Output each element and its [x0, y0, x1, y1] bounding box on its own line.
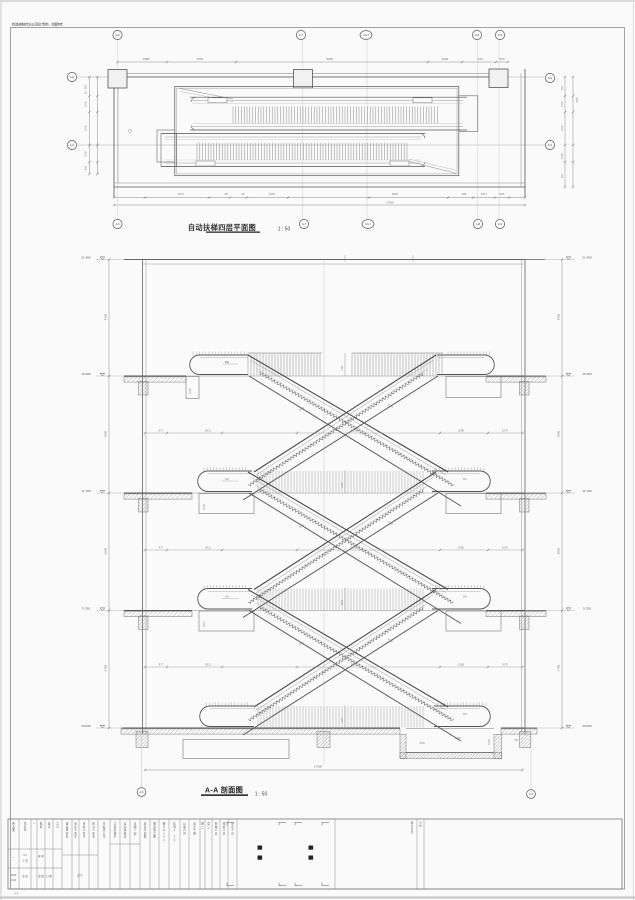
- svg-text:2611: 2611: [205, 546, 211, 550]
- svg-text:977: 977: [159, 546, 164, 550]
- svg-text:计: 计: [48, 825, 51, 829]
- svg-text:11.700: 11.700: [81, 489, 91, 493]
- svg-text:2988: 2988: [143, 57, 150, 61]
- svg-text:A-7: A-7: [302, 222, 307, 226]
- svg-text:8-6: 8-6: [225, 595, 229, 599]
- svg-text:A-6: A-6: [115, 222, 120, 226]
- svg-text:2400: 2400: [442, 57, 449, 61]
- svg-text:工 设: 工 设: [22, 858, 28, 862]
- svg-text:6000: 6000: [104, 547, 108, 554]
- svg-text:6800: 6800: [351, 663, 358, 667]
- svg-text:1500: 1500: [487, 739, 491, 745]
- svg-text:月: 月: [183, 831, 186, 835]
- svg-text:1000: 1000: [188, 388, 192, 394]
- svg-text:1/A-7: 1/A-7: [365, 223, 371, 226]
- svg-text:A-7: A-7: [299, 33, 304, 37]
- svg-text:字: 字: [74, 835, 77, 839]
- svg-text:三: 三: [207, 826, 210, 829]
- svg-text:39: 39: [224, 192, 228, 196]
- svg-text:2611: 2611: [205, 429, 211, 433]
- svg-text:2280: 2280: [458, 663, 465, 667]
- svg-text:1500: 1500: [560, 101, 564, 107]
- svg-text:16.500: 16.500: [81, 372, 91, 376]
- svg-text:1500: 1500: [84, 151, 88, 157]
- svg-text:750: 750: [514, 738, 519, 742]
- svg-text:500: 500: [499, 57, 504, 61]
- svg-text:密 级: 密 级: [38, 874, 44, 878]
- svg-text:图: 图: [153, 835, 156, 839]
- svg-text:8-6: 8-6: [225, 360, 229, 364]
- svg-text:200: 200: [462, 192, 467, 196]
- svg-text:A-9: A-9: [498, 33, 503, 37]
- svg-text:8-6: 8-6: [463, 712, 467, 716]
- svg-text:8-6: 8-6: [225, 477, 229, 481]
- svg-text:员: 员: [215, 831, 218, 835]
- svg-text:6.30: 6.30: [11, 879, 16, 882]
- svg-text:4800: 4800: [104, 430, 108, 437]
- svg-text:A-H: A-H: [70, 75, 75, 79]
- svg-text:准: 准: [40, 825, 43, 829]
- svg-text:977: 977: [159, 663, 164, 667]
- svg-text:1100: 1100: [341, 365, 344, 371]
- svg-text:A-H: A-H: [548, 76, 553, 80]
- svg-text:5.700: 5.700: [82, 606, 90, 610]
- svg-text:栏: 栏: [114, 835, 117, 839]
- svg-text:自动扶梯由专业公司设计制作，本图参考: 自动扶梯由专业公司设计制作，本图参考: [12, 22, 63, 27]
- svg-text:977: 977: [159, 429, 164, 433]
- svg-text:一: 一: [33, 823, 36, 826]
- svg-text:1871: 1871: [178, 192, 185, 196]
- svg-text:字: 字: [83, 835, 86, 839]
- svg-text:6800: 6800: [351, 429, 358, 433]
- svg-text:A-6: A-6: [140, 791, 145, 794]
- svg-text:1000: 1000: [202, 621, 206, 627]
- svg-text:日 期: 日 期: [46, 874, 52, 878]
- svg-text:1/A-7: 1/A-7: [363, 34, 369, 37]
- svg-text:450: 450: [560, 173, 564, 178]
- svg-text:340: 340: [477, 57, 482, 61]
- svg-text:中: 中: [24, 828, 27, 832]
- svg-text:8050: 8050: [327, 57, 334, 61]
- svg-text:450: 450: [84, 165, 88, 170]
- svg-text:17800: 17800: [314, 765, 323, 769]
- svg-text:2611: 2611: [205, 663, 211, 667]
- svg-text:员: 员: [231, 831, 234, 835]
- svg-text:员: 员: [223, 831, 226, 835]
- svg-text:21.400: 21.400: [81, 255, 91, 259]
- svg-text:1017: 1017: [481, 192, 488, 196]
- svg-text:A-9: A-9: [529, 793, 534, 796]
- svg-text:450: 450: [560, 85, 564, 90]
- svg-text:2280: 2280: [458, 429, 465, 433]
- svg-text:1100: 1100: [341, 482, 344, 488]
- svg-text:A-8: A-8: [476, 222, 481, 226]
- svg-text:详: 详: [124, 835, 127, 839]
- svg-text:1000: 1000: [202, 504, 206, 510]
- svg-text:8-6: 8-6: [463, 477, 467, 481]
- svg-text:4800: 4800: [557, 430, 561, 437]
- svg-text:司: 司: [103, 835, 106, 839]
- svg-text:图: 图: [12, 828, 15, 832]
- svg-text:1 : 50: 1 : 50: [255, 792, 268, 798]
- svg-text:号: 号: [56, 825, 59, 829]
- svg-text:）: ）: [134, 835, 137, 839]
- svg-text:设 计: 设 计: [77, 873, 83, 877]
- svg-text:11.700: 11.700: [582, 489, 592, 493]
- svg-text:号: 号: [411, 830, 414, 834]
- svg-text:5700: 5700: [104, 664, 108, 671]
- svg-text:1500: 1500: [560, 153, 564, 159]
- svg-text:16.500: 16.500: [582, 372, 592, 376]
- svg-text:±0.000: ±0.000: [81, 724, 91, 728]
- svg-text:1670: 1670: [502, 429, 509, 433]
- svg-text:±0.000: ±0.000: [582, 724, 592, 728]
- svg-text:自动扶梯四层平面图: 自动扶梯四层平面图: [188, 223, 256, 232]
- svg-text:4900: 4900: [104, 313, 108, 320]
- svg-text:1500: 1500: [84, 101, 88, 107]
- svg-text:二: 二: [201, 826, 204, 829]
- svg-text:6800: 6800: [351, 546, 358, 550]
- svg-text:1100: 1100: [341, 599, 344, 605]
- svg-text:2013: 2013: [11, 874, 17, 877]
- svg-text:90: 90: [241, 192, 245, 196]
- svg-text:A-9: A-9: [498, 222, 503, 226]
- svg-text:1 : 50: 1 : 50: [278, 227, 291, 233]
- svg-text:1670: 1670: [502, 546, 509, 550]
- svg-text:名: 名: [66, 835, 69, 839]
- svg-text:900: 900: [500, 192, 505, 196]
- svg-text:A-G: A-G: [548, 143, 553, 147]
- svg-text:3975: 3975: [392, 192, 399, 196]
- svg-text:修 改: 修 改: [22, 874, 28, 878]
- svg-text:4900: 4900: [557, 313, 561, 320]
- svg-text:2280: 2280: [458, 546, 465, 550]
- svg-text:2300: 2300: [419, 741, 425, 745]
- svg-text:390: 390: [84, 84, 88, 89]
- svg-text:批 阶: 批 阶: [38, 854, 44, 858]
- svg-text:5.700: 5.700: [583, 606, 591, 610]
- svg-text:A-A 剖面图: A-A 剖面图: [205, 786, 243, 795]
- svg-text:17800: 17800: [386, 200, 394, 204]
- svg-text:21.400: 21.400: [582, 255, 592, 259]
- svg-text:1307: 1307: [269, 192, 276, 196]
- svg-text:1500: 1500: [84, 125, 88, 131]
- svg-text:1100: 1100: [341, 717, 344, 723]
- svg-text:面: 面: [144, 835, 147, 839]
- svg-text:A-G: A-G: [70, 143, 75, 147]
- svg-text:5700: 5700: [557, 664, 561, 671]
- svg-text:册: 册: [193, 832, 196, 835]
- svg-text:1670: 1670: [502, 663, 509, 667]
- svg-text:4 4: 4 4: [14, 892, 19, 896]
- svg-text:A-6: A-6: [115, 33, 120, 37]
- svg-text:名: 名: [92, 835, 95, 839]
- svg-text:6000: 6000: [557, 547, 561, 554]
- svg-text:1500: 1500: [560, 125, 564, 131]
- svg-text:3050: 3050: [197, 57, 204, 61]
- svg-text:A-8: A-8: [475, 33, 480, 37]
- svg-text:3400: 3400: [575, 97, 579, 103]
- svg-text:8-6: 8-6: [463, 595, 467, 599]
